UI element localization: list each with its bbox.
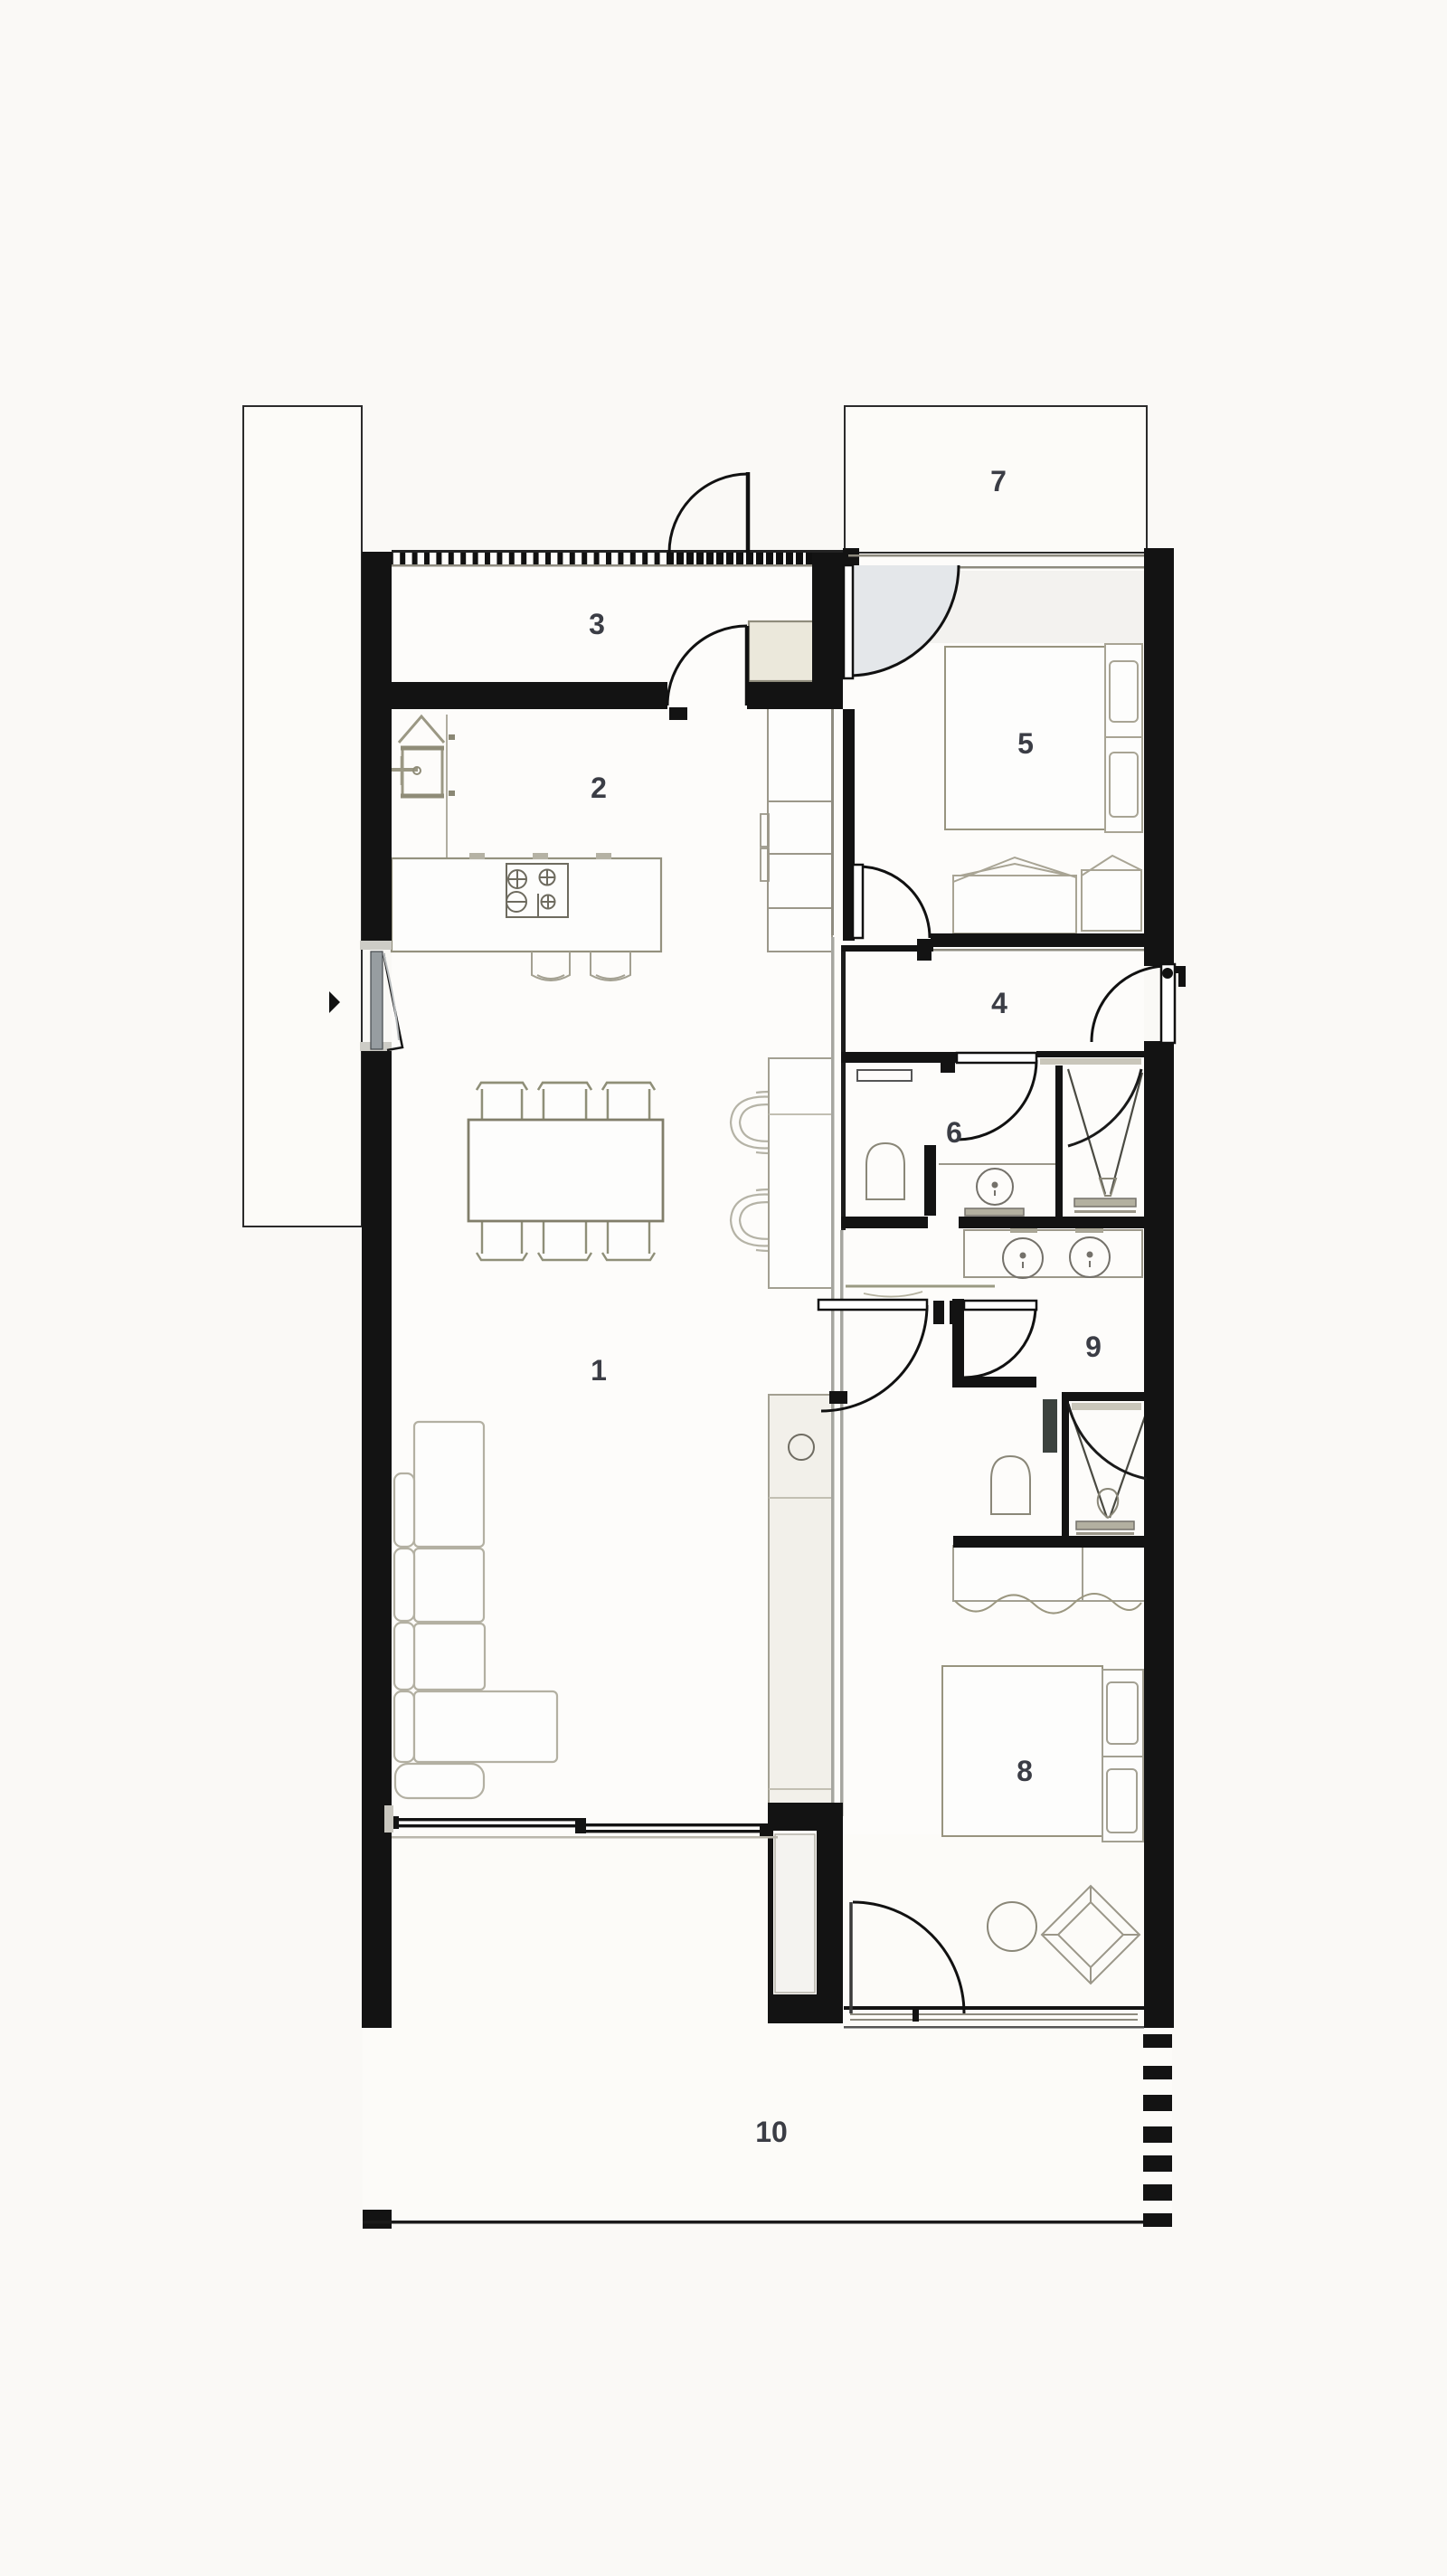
svg-text:2: 2 [591, 772, 607, 804]
svg-text:6: 6 [946, 1116, 962, 1149]
svg-text:8: 8 [1017, 1755, 1033, 1787]
svg-text:5: 5 [1017, 727, 1034, 760]
svg-text:9: 9 [1085, 1331, 1102, 1363]
svg-text:7: 7 [990, 465, 1007, 497]
svg-text:4: 4 [991, 987, 1007, 1019]
svg-text:1: 1 [591, 1354, 607, 1387]
svg-text:3: 3 [589, 608, 605, 640]
svg-text:10: 10 [755, 2116, 788, 2148]
